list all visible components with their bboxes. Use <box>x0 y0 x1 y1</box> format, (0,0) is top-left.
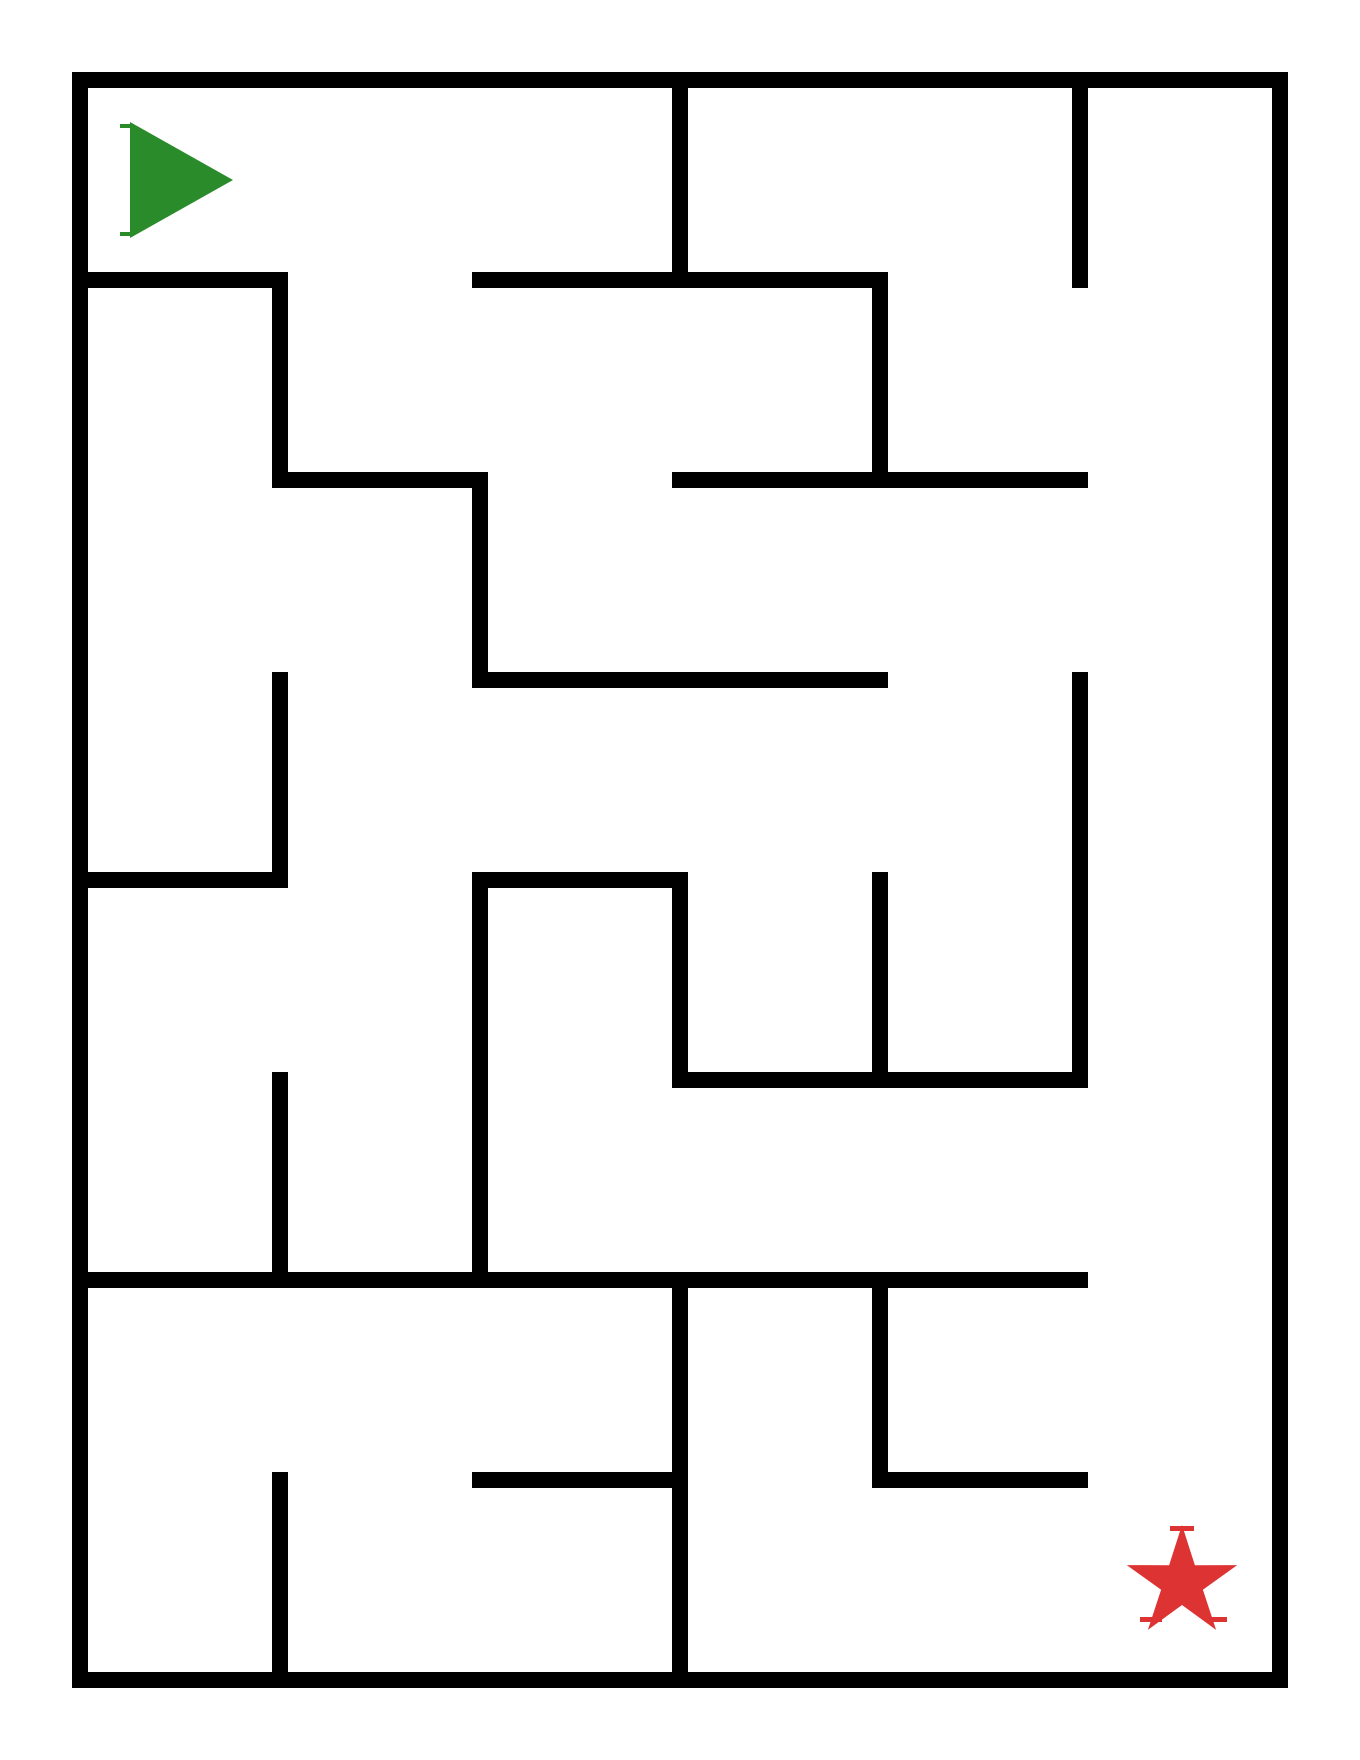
maze-page <box>0 0 1360 1760</box>
maze-canvas <box>0 0 1360 1760</box>
goal-star-icon <box>1127 1525 1237 1630</box>
goal-star-tick <box>1140 1617 1162 1622</box>
start-arrow-icon <box>120 122 233 238</box>
maze-walls-group <box>80 80 1080 1680</box>
goal-star-tick <box>1170 1526 1194 1531</box>
start-triangle-tick <box>120 124 134 128</box>
goal-star-tick <box>1205 1617 1227 1622</box>
start-triangle-shape <box>130 122 233 238</box>
start-triangle-tick <box>120 232 134 236</box>
goal-star-shape <box>1127 1525 1237 1630</box>
